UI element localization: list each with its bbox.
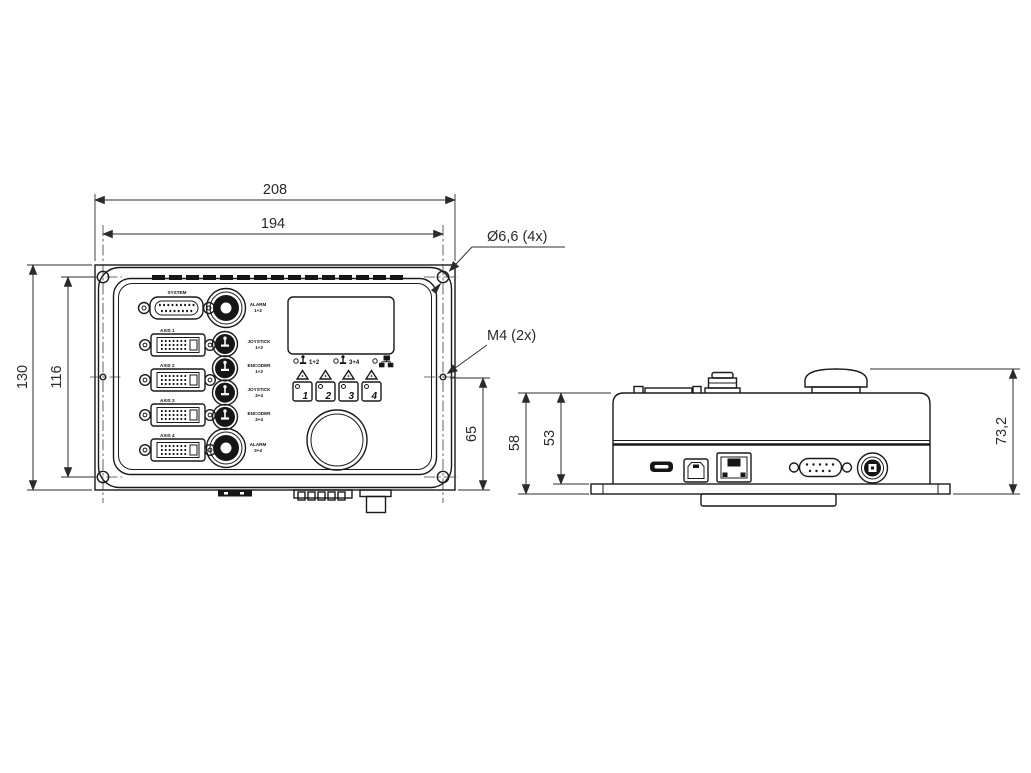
- dim-65-text: 65: [464, 426, 480, 442]
- joystick-2-label-2: 3+4: [255, 393, 263, 398]
- alarm-top-label-1: ALARM: [250, 302, 267, 307]
- axis-connector-2-label: AXIS 2: [160, 363, 175, 368]
- dim-194-text: 194: [261, 216, 285, 232]
- bottom-db9-connector: [294, 490, 352, 500]
- encoder-2-label-1: ENCODER: [248, 411, 272, 416]
- dim-53-text: 53: [542, 430, 558, 446]
- joystick-1-label-1: JOYSTICK: [248, 339, 272, 344]
- axis-connector-3-label: AXIS 3: [160, 398, 175, 403]
- channel-button-3-label: 3: [348, 391, 354, 402]
- axis-connector-4-label: AXIS 4: [160, 433, 175, 438]
- technical-drawing-page: SYSTEM AXIS 1 AXIS 2: [0, 0, 1031, 773]
- bottom-power-connector: [360, 490, 391, 513]
- alarm-bottom-label-1: ALARM: [250, 442, 267, 447]
- system-connector-label: SYSTEM: [168, 290, 187, 295]
- front-view: SYSTEM AXIS 1 AXIS 2: [15, 182, 565, 513]
- side-flange: [591, 484, 950, 494]
- channel-button-2-label: 2: [324, 391, 331, 402]
- dim-body-depth: 58: [507, 393, 611, 494]
- foot-pad: [701, 494, 836, 506]
- bottom-connector-strip: [218, 490, 252, 497]
- dim-hole-spacing-h: 194: [103, 216, 443, 234]
- dim-73-2-text: 73,2: [994, 417, 1010, 445]
- joystick-1-label-2: 1+2: [255, 345, 263, 350]
- dimension-drawing: SYSTEM AXIS 1 AXIS 2: [0, 0, 1031, 773]
- encoder-1-label-2: 1+2: [255, 369, 263, 374]
- alarm-top-label-2: 1+2: [254, 308, 262, 313]
- side-view: 58 53 73,2: [507, 369, 1020, 506]
- dim-130-text: 130: [15, 365, 31, 389]
- dim-58-text: 58: [507, 435, 523, 451]
- callout-m4-text: M4 (2x): [487, 328, 536, 344]
- encoder-2-label-2: 3+4: [255, 417, 263, 422]
- alarm-bottom-label-2: 3+4: [254, 448, 262, 453]
- channel-button-4-label: 4: [370, 391, 377, 402]
- emergency-dome: [805, 369, 867, 393]
- power-connector: [858, 453, 888, 483]
- dim-116-text: 116: [49, 365, 65, 388]
- callout-thread-hole: M4 (2x): [448, 328, 537, 374]
- top-round-connector: [705, 373, 740, 394]
- led-label-2: 3+4: [349, 360, 360, 366]
- dim-m4-height: 65: [450, 378, 490, 490]
- joystick-2-label-1: JOYSTICK: [248, 387, 272, 392]
- dim-lid-depth: 53: [542, 393, 589, 484]
- led-label-1: 1+2: [309, 360, 320, 366]
- dim-hole-spacing-v: 116: [49, 277, 95, 477]
- channel-button-1-label: 1: [302, 391, 308, 402]
- encoder-1-label-1: ENCODER: [248, 363, 272, 368]
- dim-208-text: 208: [263, 182, 287, 198]
- axis-connector-1-label: AXIS 1: [160, 328, 175, 333]
- usb-mini-port: [650, 462, 673, 473]
- callout-hole-dia-text: Ø6,6 (4x): [487, 229, 547, 245]
